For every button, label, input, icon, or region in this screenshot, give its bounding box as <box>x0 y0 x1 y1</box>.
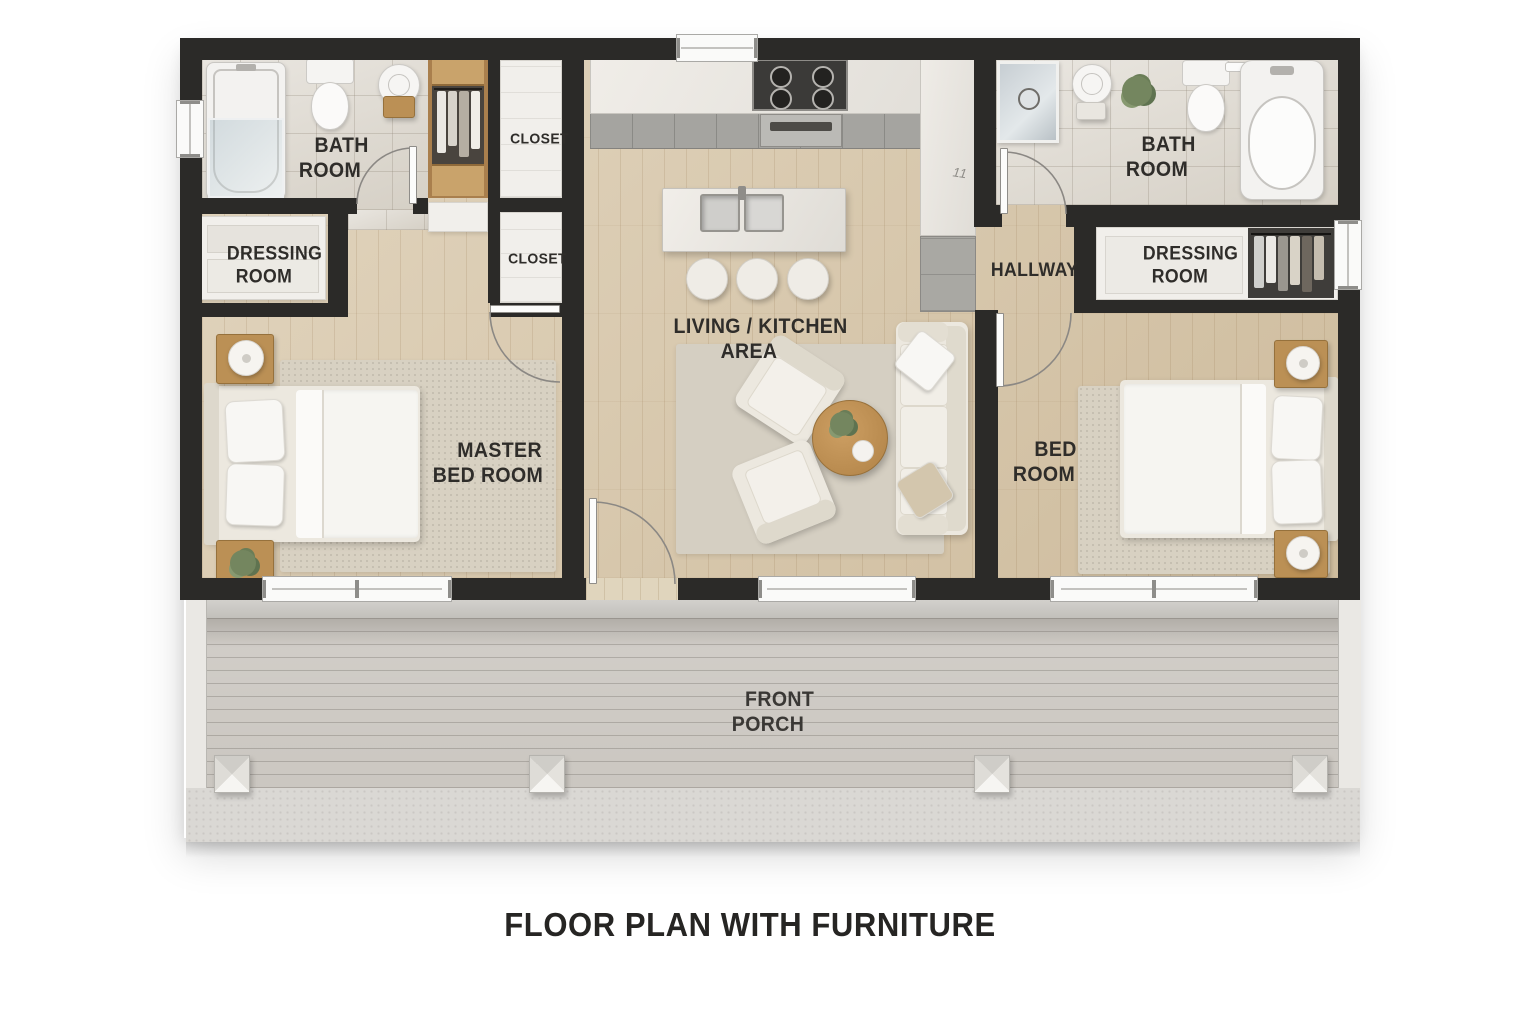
room-label-bath-right: BATHROOM <box>1118 106 1195 208</box>
porch-post <box>529 755 565 793</box>
room-label-dressing-right: DRESSINGROOM <box>1122 220 1238 313</box>
room-label-closet-top: CLOSET <box>493 113 569 168</box>
porch-frame-left <box>186 600 207 790</box>
room-label-hallway: HALLWAY <box>970 236 1079 306</box>
room-label-dressing-left: DRESSINGROOM <box>206 220 322 313</box>
porch-post <box>1292 755 1328 793</box>
door-panel-bedroom <box>996 313 1004 387</box>
page-title: FLOOR PLAN WITH FURNITURE <box>45 906 1455 944</box>
room-label-master-bedroom: MASTERBED ROOM <box>433 412 543 514</box>
room-label-front-porch: FRONTPORCH <box>722 661 814 763</box>
door-panel-bathroom-left <box>409 146 417 204</box>
room-label-bedroom: BEDROOM <box>1011 411 1077 513</box>
room-label-closet-bottom: CLOSET <box>491 233 567 288</box>
door-panel-bathroom-right <box>1000 148 1008 214</box>
porch-ledger <box>186 600 1360 619</box>
door-panel-master-bedroom <box>490 305 560 313</box>
floor-plan-canvas: BATHROOM CLOSET CLOSET DRESSINGROOM MAST… <box>0 0 1536 1024</box>
porch-ground-shadow <box>186 842 1360 858</box>
room-label-living-kitchen: LIVING / KITCHENAREA <box>650 288 847 390</box>
room-label-bath-left: BATHROOM <box>291 107 368 209</box>
porch-post <box>214 755 250 793</box>
porch-concrete-apron <box>186 788 1360 842</box>
porch-post <box>974 755 1010 793</box>
door-panel-front-entry <box>589 498 597 584</box>
porch-frame-right <box>1338 600 1361 790</box>
